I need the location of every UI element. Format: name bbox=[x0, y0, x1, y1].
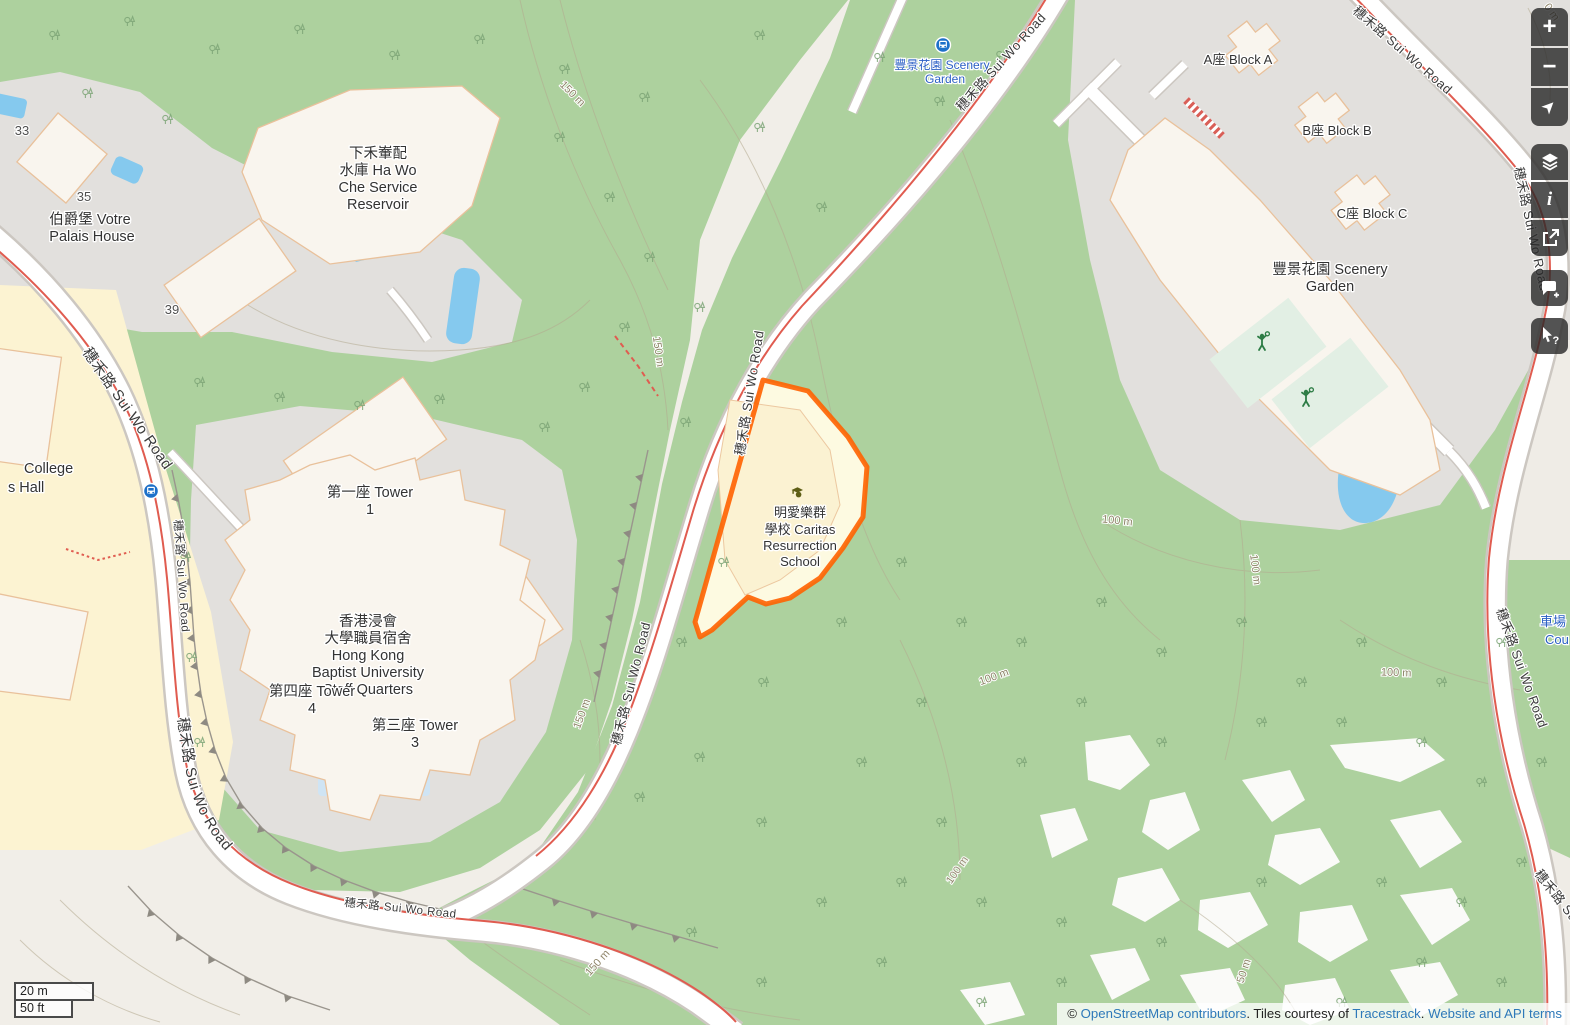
svg-text:大學職員宿舍: 大學職員宿舍 bbox=[325, 629, 412, 647]
block-a-label: A座 Block A bbox=[1204, 52, 1273, 67]
block-b-label: B座 Block B bbox=[1302, 123, 1371, 138]
college-hall-label: College bbox=[24, 461, 73, 477]
plus-icon: + bbox=[1542, 15, 1556, 39]
query-features-button[interactable]: ? bbox=[1531, 318, 1568, 354]
svg-text:School: School bbox=[780, 554, 820, 569]
zoom-out-button[interactable]: − bbox=[1531, 48, 1568, 86]
court-partial-label: 車場 bbox=[1540, 614, 1566, 629]
share-icon bbox=[1540, 228, 1560, 248]
svg-text:4: 4 bbox=[308, 701, 316, 717]
svg-text:Garden: Garden bbox=[1306, 279, 1354, 295]
scale-imperial: 50 ft bbox=[14, 999, 73, 1018]
layers-control-group: i bbox=[1531, 144, 1568, 256]
locate-arrow-icon: ➤ bbox=[1537, 95, 1561, 119]
contour-label: 100 m bbox=[1381, 666, 1412, 679]
svg-text:Hong Kong: Hong Kong bbox=[332, 648, 405, 664]
hkbu-label: 香港浸會 bbox=[339, 613, 397, 630]
house-number: 35 bbox=[77, 189, 91, 204]
bus-stop-icon[interactable] bbox=[144, 484, 159, 499]
svg-text:3: 3 bbox=[411, 735, 419, 751]
svg-text:Reservoir: Reservoir bbox=[347, 197, 409, 213]
query-cursor-icon: ? bbox=[1539, 325, 1561, 347]
minus-icon: − bbox=[1542, 55, 1556, 79]
school-label: 明愛樂群 bbox=[774, 505, 826, 520]
bus-stop-label: 豐景花園 Scenery bbox=[894, 57, 989, 72]
svg-text:Resurrection: Resurrection bbox=[763, 538, 837, 553]
svg-text:學校 Caritas: 學校 Caritas bbox=[765, 522, 836, 537]
terms-link[interactable]: Website and API terms bbox=[1428, 1006, 1562, 1021]
locate-button[interactable]: ➤ bbox=[1531, 88, 1568, 126]
map-canvas[interactable]: 下禾輋配 水庫 Ha Wo Che Service Reservoir 伯爵堡 … bbox=[0, 0, 1570, 1025]
svg-text:1: 1 bbox=[366, 502, 374, 518]
house-number: 33 bbox=[15, 123, 29, 138]
tracestrack-link[interactable]: Tracestrack bbox=[1352, 1006, 1420, 1021]
svg-text:水庫 Ha Wo: 水庫 Ha Wo bbox=[339, 162, 416, 179]
note-icon bbox=[1539, 278, 1560, 299]
svg-text:?: ? bbox=[1552, 335, 1559, 347]
layers-button[interactable] bbox=[1531, 144, 1568, 180]
zoom-in-button[interactable]: + bbox=[1531, 8, 1568, 46]
svg-text:Che Service: Che Service bbox=[339, 180, 418, 196]
bus-stop-icon[interactable] bbox=[936, 38, 951, 53]
zoom-control-group: + − ➤ bbox=[1531, 8, 1568, 126]
map-viewport[interactable]: 下禾輋配 水庫 Ha Wo Che Service Reservoir 伯爵堡 … bbox=[0, 0, 1570, 1025]
svg-text:Palais House: Palais House bbox=[49, 229, 134, 245]
attribution-bar: © OpenStreetMap contributors. Tiles cour… bbox=[1057, 1003, 1570, 1025]
block-c-label: C座 Block C bbox=[1337, 206, 1408, 221]
map-controls: + − ➤ i ? bbox=[1531, 8, 1568, 366]
copyright-symbol: © bbox=[1067, 1006, 1080, 1021]
info-button[interactable]: i bbox=[1531, 182, 1568, 218]
tower1-label: 第一座 Tower bbox=[327, 483, 413, 501]
tower4-label: 第四座 Tower bbox=[269, 682, 355, 700]
house-number: 39 bbox=[165, 302, 179, 317]
osm-contributors-link[interactable]: OpenStreetMap contributors bbox=[1081, 1006, 1247, 1021]
info-icon: i bbox=[1547, 189, 1552, 211]
svg-text:s Hall: s Hall bbox=[8, 480, 44, 496]
add-note-button[interactable] bbox=[1531, 270, 1568, 306]
svg-text:Baptist University: Baptist University bbox=[312, 665, 425, 681]
scale-bar: 20 m 50 ft bbox=[14, 982, 94, 1018]
layers-icon bbox=[1540, 152, 1560, 172]
tower3-label: 第三座 Tower bbox=[372, 716, 458, 734]
votre-palais-label: 伯爵堡 Votre bbox=[49, 211, 130, 228]
share-button[interactable] bbox=[1531, 220, 1568, 256]
svg-text:Cou: Cou bbox=[1545, 632, 1569, 647]
svg-text:Garden: Garden bbox=[925, 72, 965, 86]
reservoir-label: 下禾輋配 bbox=[349, 145, 407, 162]
scenery-garden-label: 豐景花園 Scenery bbox=[1272, 261, 1388, 278]
